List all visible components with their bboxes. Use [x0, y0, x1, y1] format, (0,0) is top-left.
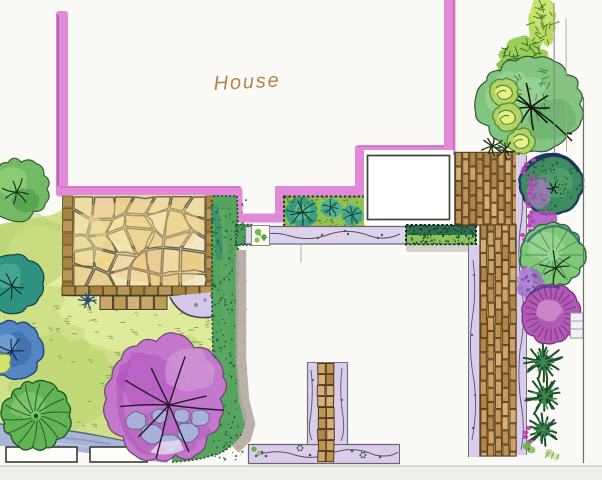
svg-text:House: House: [213, 70, 281, 95]
